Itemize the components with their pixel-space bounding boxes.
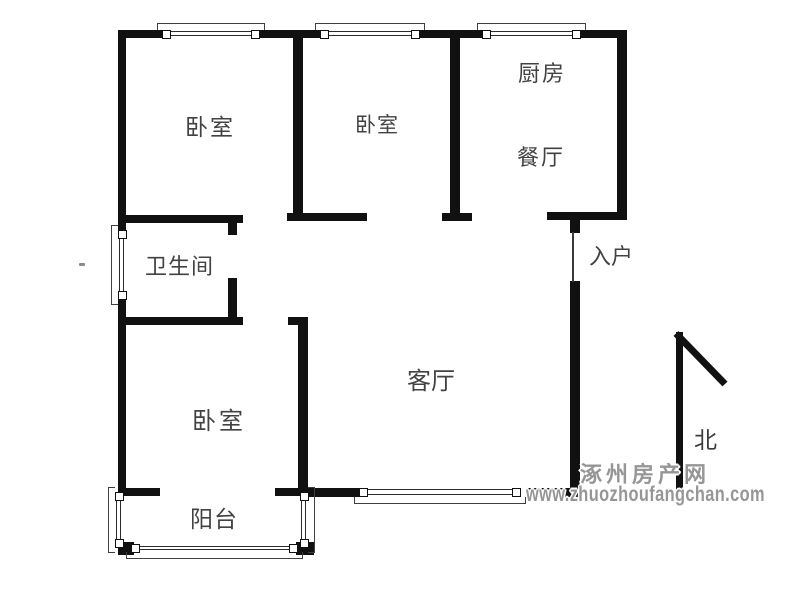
wall-segment (570, 281, 580, 497)
wall-segment (257, 30, 323, 38)
room-label-bedroom-top-middle: 卧室 (355, 114, 399, 136)
room-label-bathroom: 卫生间 (145, 255, 214, 278)
window-symbol (300, 495, 308, 545)
window-symbol (323, 30, 417, 38)
watermark-url: www.zhuozhoufangchan.com (526, 483, 765, 507)
floor-plan: 卧室 卧室 厨房 餐厅 卫生间 入户 客厅 卧室 阳台 北 涿州房产网 www.… (0, 0, 799, 600)
window-symbol (118, 233, 126, 297)
window-outer-frame (126, 552, 303, 559)
window-symbol (165, 30, 257, 38)
wall-segment (118, 488, 160, 496)
window-symbol (362, 488, 518, 497)
window-symbol (115, 495, 123, 545)
window-outer-frame (354, 497, 526, 504)
room-label-balcony: 阳台 (190, 508, 238, 532)
wall-segment (287, 213, 367, 221)
wall-segment (118, 30, 126, 233)
wall-segment (298, 317, 308, 492)
window-outer-frame (477, 23, 586, 30)
wall-segment (547, 212, 627, 220)
wall-segment (228, 215, 237, 235)
room-label-dining: 餐厅 (517, 146, 565, 169)
north-label: 北 (694, 429, 717, 453)
wall-segment (308, 488, 360, 497)
wall-segment (118, 215, 243, 223)
window-symbol (134, 545, 295, 552)
wall-segment (293, 34, 303, 215)
wall-segment (118, 297, 126, 495)
window-outer-frame (308, 487, 315, 553)
room-label-kitchen: 厨房 (518, 62, 566, 85)
window-outer-frame (315, 23, 425, 30)
room-label-living-room: 客厅 (407, 370, 455, 395)
stray-mark (79, 263, 85, 266)
room-label-bedroom-bottom: 卧室 (192, 410, 246, 435)
wall-segment (450, 34, 460, 215)
wall-segment (118, 317, 243, 325)
entry-door-line (572, 232, 574, 282)
room-label-entry: 入户 (589, 245, 633, 268)
window-outer-frame (108, 487, 115, 553)
window-symbol (485, 30, 578, 38)
window-outer-frame (157, 23, 265, 30)
wall-segment (617, 30, 627, 220)
room-label-bedroom-top-left: 卧室 (185, 116, 235, 140)
window-outer-frame (111, 225, 118, 305)
wall-segment (442, 213, 472, 221)
